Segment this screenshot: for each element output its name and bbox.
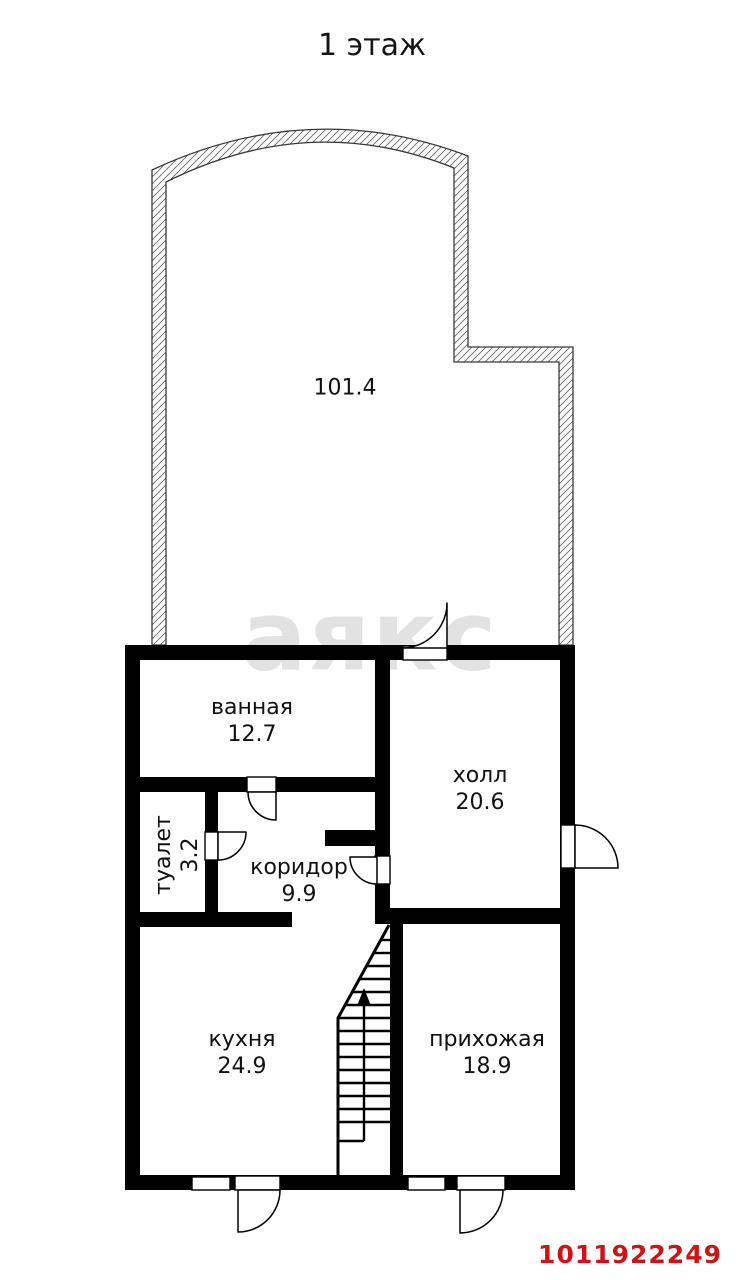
room-label-bathroom: ванная 12.7 xyxy=(211,694,293,748)
interior-walls xyxy=(140,660,560,1175)
room-label-main: 101.4 xyxy=(314,375,377,402)
room-name: коридор xyxy=(250,854,348,881)
door-swing-upper-room xyxy=(403,603,447,648)
room-label-toilet: туалет 3.2 xyxy=(150,815,204,895)
room-area: 3.2 xyxy=(177,815,204,895)
floor-title: 1 этаж xyxy=(0,28,744,63)
staircase xyxy=(338,925,390,1177)
room-label-entryway: прихожая 18.9 xyxy=(429,1026,545,1080)
room-area: 24.9 xyxy=(209,1053,276,1080)
room-name: холл xyxy=(453,762,508,789)
door-swing-hall-exit xyxy=(575,825,618,868)
room-name: прихожая xyxy=(429,1026,545,1053)
room-label-hall: холл 20.6 xyxy=(453,762,508,816)
room-label-corridor: коридор 9.9 xyxy=(250,854,348,908)
door-swing-entryway-exit xyxy=(460,1190,503,1233)
room-area: 101.4 xyxy=(314,375,377,402)
listing-id: 1011922249 xyxy=(538,1240,722,1269)
room-area: 20.6 xyxy=(453,789,508,816)
door-swing-toilet xyxy=(218,832,246,860)
room-name: ванная xyxy=(211,694,293,721)
room-name: кухня xyxy=(209,1026,276,1053)
door-swing-kitchen-exit xyxy=(238,1190,280,1232)
door-swing-corridor xyxy=(350,857,377,884)
room-area: 9.9 xyxy=(250,881,348,908)
floorplan-drawing xyxy=(0,0,744,1280)
floorplan-page: 1 этаж аякс xyxy=(0,0,744,1280)
room-label-kitchen: кухня 24.9 xyxy=(209,1026,276,1080)
room-area: 18.9 xyxy=(429,1053,545,1080)
room-name: туалет xyxy=(150,815,177,895)
room-area: 12.7 xyxy=(211,721,293,748)
door-swing-bathroom xyxy=(248,792,276,820)
stairs-up-arrow xyxy=(357,988,371,1006)
